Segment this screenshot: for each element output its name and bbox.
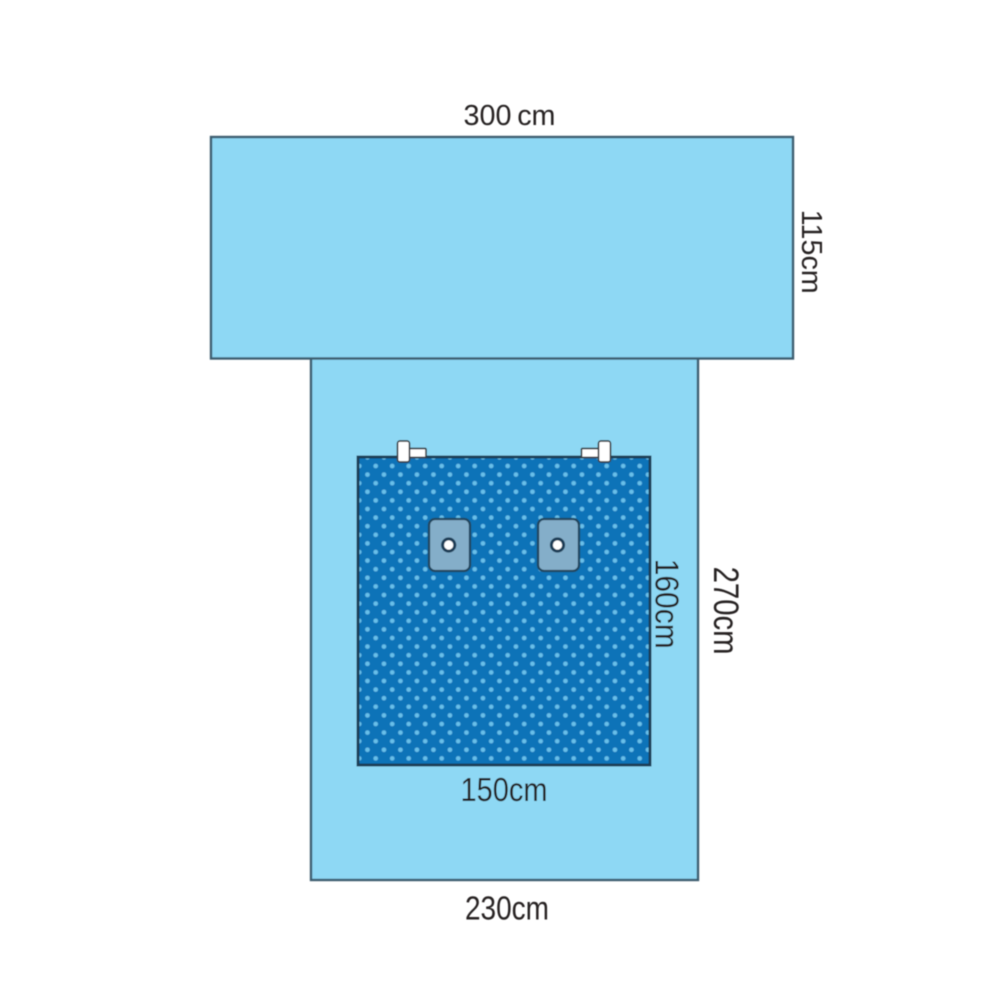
svg-text:230cm: 230cm — [465, 890, 549, 927]
svg-text:150cm: 150cm — [461, 771, 548, 808]
svg-text:270cm: 270cm — [706, 567, 745, 655]
svg-text:300 cm: 300 cm — [464, 100, 556, 132]
svg-text:160cm: 160cm — [649, 559, 686, 649]
svg-text:115cm: 115cm — [795, 210, 827, 294]
